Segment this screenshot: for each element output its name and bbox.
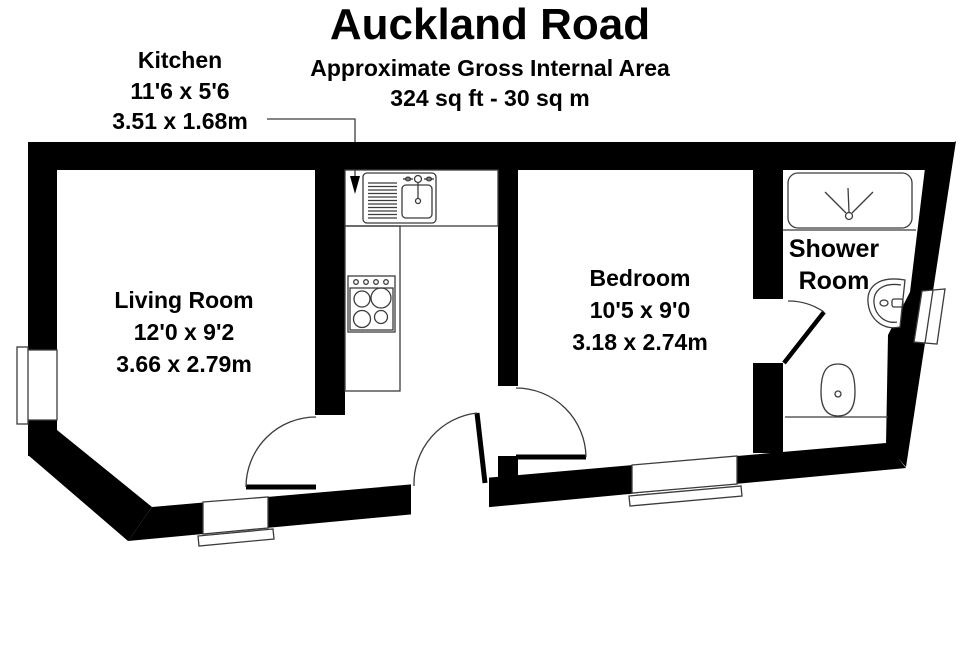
- living-room-size-imperial: 12'0 x 9'2: [34, 317, 334, 348]
- wall-bottom-left-diagonal: [28, 430, 152, 541]
- kitchen-fixtures: [345, 170, 498, 391]
- shower-room-door-leaf: [784, 312, 824, 363]
- entrance-door: [414, 413, 485, 486]
- living-room-size-metric: 3.66 x 2.79m: [34, 349, 334, 380]
- living-room-name: Living Room: [34, 285, 334, 316]
- shower-tray-icon: [788, 173, 912, 228]
- leader-arrowhead-icon: [350, 176, 360, 194]
- bedroom-door: [516, 388, 586, 457]
- kitchen-name: Kitchen: [30, 45, 330, 76]
- hob-icon: [348, 276, 395, 332]
- wall-top: [28, 142, 956, 170]
- living-room-door: [246, 417, 316, 487]
- wall-bedroom-shower-lower: [753, 363, 783, 453]
- kitchen-size-metric: 3.51 x 1.68m: [30, 106, 330, 137]
- room-label-shower-room: Shower Room: [769, 233, 899, 297]
- bedroom-size-imperial: 10'5 x 9'0: [490, 295, 790, 326]
- living-room-door-arc: [246, 417, 316, 487]
- entrance-opening: [411, 475, 489, 518]
- kitchen-sink-icon: [363, 173, 436, 223]
- shower-room-door-arc: [788, 301, 824, 312]
- kitchen-size-imperial: 11'6 x 5'6: [30, 76, 330, 107]
- left-window-sill: [17, 347, 28, 424]
- page-title: Auckland Road: [0, 2, 980, 48]
- shower-room-door: [784, 301, 824, 363]
- bedroom-door-arc: [516, 388, 586, 457]
- entrance-door-leaf: [477, 413, 485, 483]
- toilet-icon: [821, 364, 855, 416]
- bedroom-size-metric: 3.18 x 2.74m: [490, 327, 790, 358]
- bedroom-name: Bedroom: [490, 263, 790, 294]
- wall-stub-bedroom-door: [498, 456, 518, 482]
- living-room-window: [203, 497, 268, 534]
- floor-plan: Auckland Road Approximate Gross Internal…: [0, 0, 980, 660]
- entrance-door-arc: [414, 413, 477, 486]
